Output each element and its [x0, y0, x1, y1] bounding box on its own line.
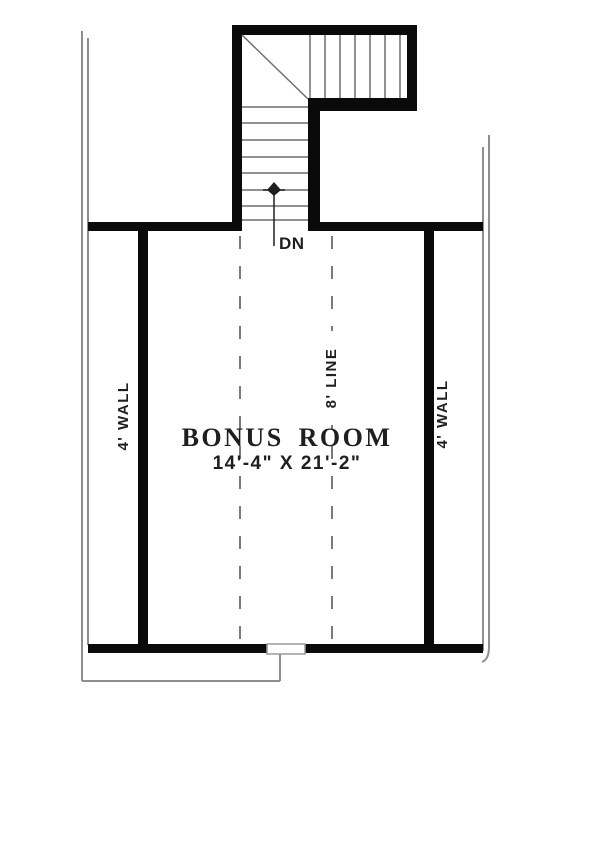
- window: [267, 644, 305, 654]
- interior-wall-right: [424, 222, 434, 653]
- room-name: BONUS ROOM: [182, 423, 393, 452]
- wall-label-right: 4' WALL: [434, 379, 451, 448]
- interior-wall-left: [138, 226, 148, 653]
- stair-treads: [242, 35, 400, 220]
- stair-top-wall: [232, 25, 417, 35]
- stair-diagonal: [242, 35, 308, 99]
- ceiling-line-label: 8' LINE: [323, 348, 340, 409]
- walls: [88, 25, 483, 653]
- bottom-wall-left-segment: [88, 644, 267, 653]
- top-wall-right-segment: [314, 222, 483, 231]
- plan-labels: DN BONUS ROOM 14'-4" X 21'-2" 4' WALL 4'…: [115, 234, 451, 474]
- wall-label-left: 4' WALL: [115, 381, 132, 450]
- stair-stem-wall: [308, 98, 320, 231]
- dn-arrowhead: [267, 182, 281, 196]
- stair-left-wall: [232, 25, 242, 231]
- bottom-wall-right-segment: [303, 644, 483, 653]
- room-dimensions: 14'-4" X 21'-2": [213, 453, 362, 474]
- stair-landing-wall: [308, 98, 417, 111]
- dn-label: DN: [279, 234, 305, 253]
- floor-plan: DN BONUS ROOM 14'-4" X 21'-2" 4' WALL 4'…: [0, 0, 600, 852]
- floor-plan-page: DN BONUS ROOM 14'-4" X 21'-2" 4' WALL 4'…: [0, 0, 600, 852]
- top-wall-left-segment: [88, 222, 242, 231]
